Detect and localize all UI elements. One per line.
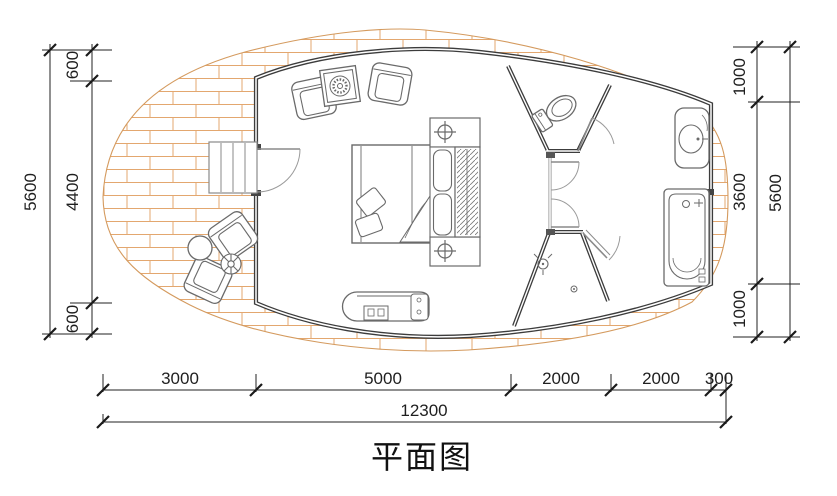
round-table [188,236,212,260]
nightstand [430,118,480,147]
dim-right-seg1: 3600 [730,173,749,211]
dim-bottom-seg3: 2000 [642,369,680,388]
floor-plan-page: 5600 600 4400 600 1000 3600 1000 5600 30… [0,0,837,496]
dim-left-seg1: 4400 [63,173,82,211]
dim-left-total: 5600 [21,173,40,211]
dim-right-total: 5600 [766,174,785,212]
side-table [320,66,361,107]
floor-plan-svg: 5600 600 4400 600 1000 3600 1000 5600 30… [0,0,837,496]
dim-left-seg2: 600 [63,305,82,333]
potted-plant-icon [221,254,241,274]
dim-bottom-seg1: 5000 [364,369,402,388]
headboard [430,147,455,237]
chaise-lounge [343,292,430,321]
dim-bottom-seg4: 300 [705,369,733,388]
dim-left-seg0: 600 [63,51,82,79]
dim-bottom-total: 12300 [400,401,447,420]
washbasin [675,108,709,168]
wardrobe [455,147,480,237]
armchair [367,62,413,106]
dim-right-seg2: 1000 [730,290,749,328]
dim-bottom-seg0: 3000 [161,369,199,388]
nightstand [430,237,480,266]
bathtub [664,189,709,286]
dim-bottom-seg2: 2000 [542,369,580,388]
drawing-title: 平面图 [371,439,473,475]
entry-stairs [209,142,257,193]
dim-right-seg0: 1000 [730,58,749,96]
